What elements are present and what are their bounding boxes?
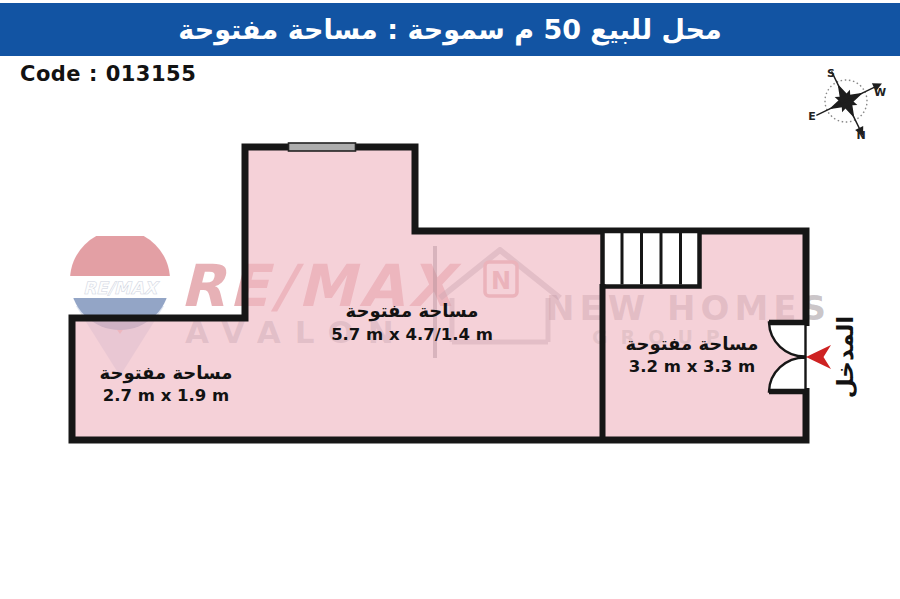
room-left-dims: 2.7 m x 1.9 m	[103, 386, 229, 405]
room-right-dims: 3.2 m x 3.3 m	[629, 357, 755, 376]
room-middle-dims: 5.7 m x 4.7/1.4 m	[331, 325, 493, 344]
window	[289, 143, 356, 151]
room-middle-label: مساحة مفتوحة	[346, 300, 479, 322]
room-right-label: مساحة مفتوحة	[626, 333, 759, 355]
compass-south-label: S	[827, 67, 835, 80]
compass-west-label: W	[874, 86, 886, 99]
floor-plan: المدخل مساحة مفتوحة 5.7 m x 4.7/1.4 m مس…	[0, 0, 900, 599]
room-left-label: مساحة مفتوحة	[100, 362, 233, 384]
staircase	[603, 231, 700, 287]
compass-rose-icon: S W E N	[802, 54, 899, 151]
compass-north-label: N	[856, 129, 865, 142]
compass-east-label: E	[808, 110, 816, 123]
entrance-label: المدخل	[832, 316, 858, 398]
